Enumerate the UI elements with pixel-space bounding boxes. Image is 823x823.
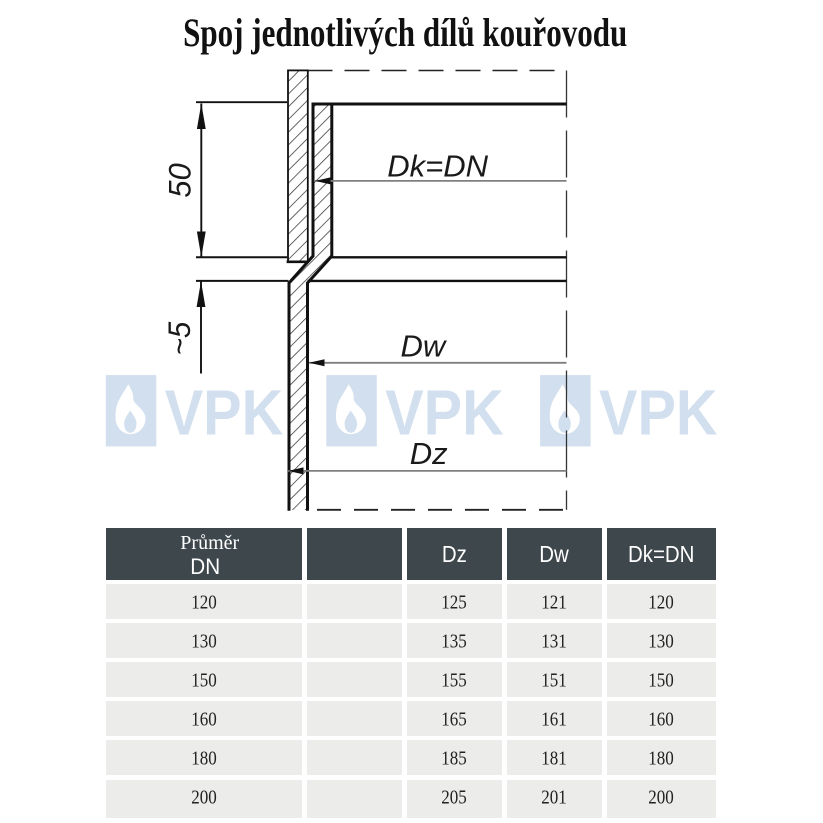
svg-text:Dk=DN: Dk=DN	[387, 149, 488, 184]
svg-text:VPK: VPK	[165, 377, 284, 449]
svg-text:50: 50	[162, 163, 198, 198]
svg-text:~5: ~5	[161, 321, 197, 355]
svg-text:Dw: Dw	[401, 329, 448, 364]
svg-text:VPK: VPK	[599, 377, 718, 449]
svg-text:Dz: Dz	[410, 436, 448, 471]
